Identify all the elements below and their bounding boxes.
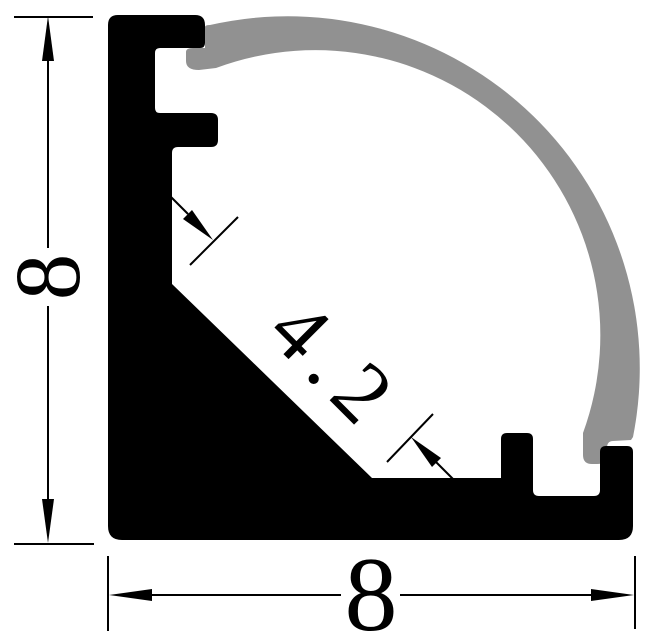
width-dim-arrow-left-icon: [109, 589, 152, 601]
height-dim-arrow-down-icon: [42, 499, 54, 543]
height-dim-label: 8: [0, 254, 100, 301]
aluminum-profile-body: [108, 15, 633, 540]
face-dim-arrow-upper-icon: [183, 210, 213, 240]
width-dim-arrow-right-icon: [591, 589, 634, 601]
height-dim-arrow-up-icon: [42, 16, 54, 61]
profile-cross-section-canvas: 8 8 4.2: [0, 0, 661, 640]
face-dim-tail-lower: [436, 462, 453, 479]
technical-drawing: 8 8 4.2: [0, 0, 661, 640]
width-dim-label: 8: [345, 536, 398, 640]
